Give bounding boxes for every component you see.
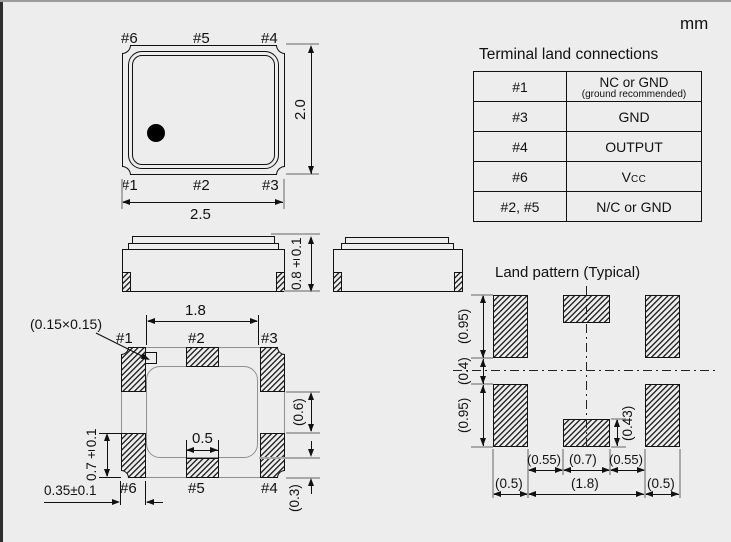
terminal-land-connections-table: #1 NC or GND(ground recommended) #3 GND …	[473, 71, 702, 222]
pin1-orientation-dot	[147, 124, 165, 142]
bottom-view-pin-label: #4	[261, 480, 278, 497]
thickness-dim-label: 0.8±0.1	[289, 237, 304, 291]
signal-subscript: CC	[631, 174, 646, 185]
table-row: #4 OUTPUT	[474, 132, 702, 162]
top-view-lid-seam-inner	[132, 55, 275, 165]
arrowhead	[308, 478, 314, 486]
arrowhead	[308, 392, 314, 400]
land-pad-top-left	[493, 295, 528, 358]
extension-line	[99, 433, 121, 434]
extension-line	[99, 477, 121, 478]
extension-line	[286, 477, 320, 479]
table-title: Terminal land connections	[479, 46, 658, 64]
dimension-line	[123, 202, 283, 203]
extension-line	[611, 446, 626, 448]
top-view-pin-label: #1	[121, 177, 138, 194]
arrowhead	[147, 318, 155, 324]
pin-cell: #1	[474, 72, 567, 102]
top-view-pin-label: #6	[121, 30, 138, 47]
arrowhead	[563, 467, 571, 473]
end-view-body	[333, 249, 463, 292]
arrowhead	[308, 424, 314, 432]
side-gap-dim-label: (0.6)	[291, 394, 306, 430]
arrowhead	[636, 491, 644, 497]
extension-line	[218, 440, 219, 458]
arrowhead	[122, 199, 130, 205]
arrowhead	[528, 467, 536, 473]
unit-label: mm	[680, 14, 708, 34]
land-gap-dim-label: (0.55)	[609, 452, 643, 467]
extension-line	[679, 449, 681, 498]
arrowhead	[528, 491, 536, 497]
page-left-border	[0, 0, 3, 542]
end-view-castellation	[454, 272, 463, 292]
dimension-line	[311, 238, 312, 290]
bottom-view-pin-label: #2	[188, 330, 205, 347]
land-span-dim-label: (1.8)	[571, 476, 599, 491]
table-row: #1 NC or GND(ground recommended)	[474, 72, 702, 102]
arrowhead	[104, 433, 110, 441]
land-gap-dim-label: (0.55)	[527, 452, 561, 467]
inner-span-dim-label: 1.8	[185, 302, 206, 319]
signal-cell: VCC	[567, 162, 702, 192]
land-pad-bottom-left	[493, 384, 528, 447]
arrowhead	[308, 284, 314, 292]
edge-gap-dim-label: (0.3)	[287, 480, 302, 516]
extension-line	[258, 315, 259, 345]
extension-line	[286, 173, 319, 175]
extension-line	[286, 43, 319, 45]
arrowhead	[671, 491, 679, 497]
dimension-line	[311, 47, 312, 174]
dimension-line	[529, 494, 644, 495]
bottom-view-pin-label: #5	[188, 480, 205, 497]
arrowhead	[112, 499, 120, 505]
extension-line	[471, 446, 493, 448]
leader-arrow	[94, 331, 156, 365]
arrowhead	[480, 385, 486, 393]
arrowhead	[610, 467, 618, 473]
land-center-pad-width-dim-label: (0.7)	[569, 452, 597, 467]
width-dim-label: 2.5	[190, 206, 211, 223]
top-view-pin-label: #2	[193, 177, 210, 194]
signal-text: NC or GND	[599, 75, 668, 90]
height-dim-label: 2.0	[292, 96, 309, 124]
side-view-castellation	[122, 272, 131, 292]
table-row: #6 VCC	[474, 162, 702, 192]
table-row: #2, #5 N/C or GND	[474, 192, 702, 222]
dimension-line	[311, 486, 312, 494]
dimension-line	[148, 321, 257, 322]
extension-line	[286, 391, 320, 393]
arrowhead	[308, 449, 314, 457]
signal-cell: NC or GND(ground recommended)	[567, 72, 702, 102]
land-row-gap-dim-label: (0.4)	[456, 354, 471, 388]
signal-cell: GND	[567, 102, 702, 132]
extension-line	[120, 481, 121, 505]
datasheet-drawing: mm #6 #5 #4 #1 #2 #3 2.0 2.5 0.8±0.1	[0, 0, 731, 542]
dimension-line	[483, 385, 484, 446]
end-view-castellation	[333, 272, 342, 292]
pin-cell: #4	[474, 132, 567, 162]
land-pad-bottom-right	[645, 384, 680, 447]
extension-line	[283, 179, 285, 209]
table-row: #3 GND	[474, 102, 702, 132]
arrowhead	[602, 467, 610, 473]
arrowhead	[210, 447, 218, 453]
signal-text: V	[622, 169, 631, 185]
signal-note: (ground recommended)	[567, 90, 701, 100]
arrowhead	[250, 318, 258, 324]
land-pad-height-dim-label: (0.95)	[456, 394, 471, 436]
corner-pad-height-dim-label: 0.7±0.1	[84, 428, 99, 482]
centerline-vertical	[586, 286, 587, 450]
land-pad-width-dim-label: (0.5)	[495, 476, 523, 491]
land-pad-width-dim-label: (0.5)	[647, 476, 675, 491]
arrowhead	[480, 359, 486, 367]
bottom-pad-5	[186, 458, 219, 478]
bottom-pad-2	[186, 347, 219, 367]
center-pad-width-dim-label: 0.5	[192, 430, 213, 447]
arrowhead	[493, 491, 501, 497]
land-pad-height-dim-label: (0.95)	[456, 305, 471, 347]
arrowhead	[480, 295, 486, 303]
bottom-view-pin-label: #6	[120, 480, 137, 497]
land-pad-top-right	[645, 295, 680, 358]
extension-line	[259, 457, 320, 459]
arrowhead	[645, 491, 653, 497]
arrowhead	[480, 376, 486, 384]
arrowhead	[480, 350, 486, 358]
dimension-line	[44, 502, 113, 503]
pin-cell: #2, #5	[474, 192, 567, 222]
corner-pad-width-dim-label: 0.35±0.1	[44, 483, 96, 498]
arrowhead	[146, 499, 154, 505]
bottom-view-pin-label: #3	[261, 330, 278, 347]
pin-cell: #3	[474, 102, 567, 132]
dimension-line	[483, 296, 484, 358]
arrowhead	[308, 166, 314, 174]
top-view-pin-label: #4	[261, 30, 278, 47]
top-view-pin-label: #5	[193, 30, 210, 47]
side-view-body	[122, 249, 285, 292]
arrowhead	[637, 467, 645, 473]
arrowhead	[520, 491, 528, 497]
arrowhead	[308, 45, 314, 53]
arrowhead	[186, 447, 194, 453]
top-view-pin-label: #3	[262, 177, 279, 194]
arrowhead	[480, 438, 486, 446]
index-notch-dim-label: (0.15×0.15)	[30, 316, 102, 332]
signal-cell: OUTPUT	[567, 132, 702, 162]
extension-line	[271, 233, 320, 235]
land-pattern-title: Land pattern (Typical)	[495, 264, 640, 281]
land-center-pad-height-dim-label: (0.43)	[620, 400, 635, 446]
arrowhead	[555, 467, 563, 473]
side-view-castellation	[276, 272, 285, 292]
arrowhead	[275, 199, 283, 205]
dimension-line	[311, 441, 312, 449]
arrowhead	[308, 236, 314, 244]
signal-cell: N/C or GND	[567, 192, 702, 222]
page-top-border	[0, 0, 731, 2]
extension-line	[286, 432, 320, 434]
pin-cell: #6	[474, 162, 567, 192]
arrowhead	[104, 469, 110, 477]
